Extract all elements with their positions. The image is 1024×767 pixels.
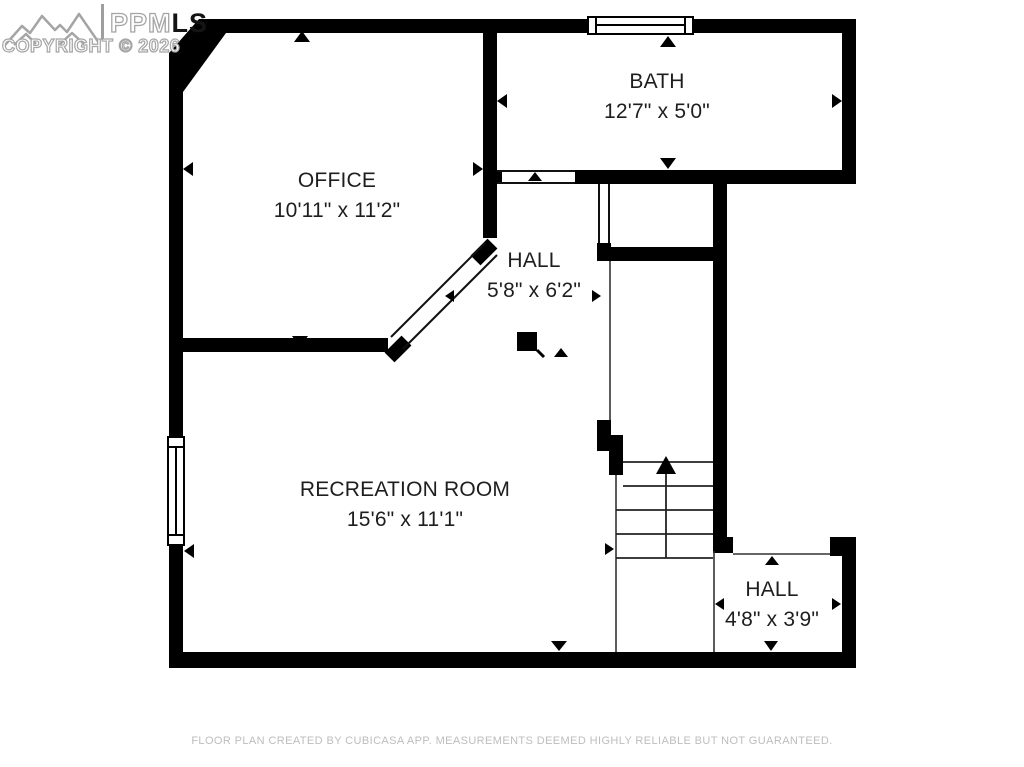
arrow-hall-lower-up-icon (765, 556, 779, 565)
room-dims: 5'8" x 6'2" (434, 276, 634, 306)
room-label-hall-lower: HALL 4'8" x 3'9" (697, 575, 847, 635)
post-tick (537, 350, 544, 357)
watermark: PPMLS COPYRIGHT © 2026 (0, 0, 260, 70)
arrow-bath-left-icon (497, 94, 507, 108)
arrow-hall-post-icon (554, 348, 568, 357)
arrow-bath-down-icon (660, 158, 676, 169)
watermark-brand-outline: PPM (110, 8, 172, 38)
room-dims: 10'11" x 11'2" (187, 196, 487, 226)
wall-bottom (169, 652, 856, 668)
room-name: RECREATION ROOM (255, 475, 555, 505)
post-column (517, 332, 544, 357)
wall-hall-lower-corner-block (830, 537, 856, 556)
room-name: HALL (434, 246, 634, 276)
room-name: BATH (507, 67, 807, 97)
room-label-bath: BATH 12'7" x 5'0" (507, 67, 807, 127)
watermark-divider (101, 4, 104, 40)
arrow-rec-right-icon (605, 543, 614, 555)
wall-bath-right (842, 19, 856, 184)
wall-left-upper (169, 92, 183, 437)
arrow-hall-lower-down-icon (764, 641, 778, 651)
wall-stair-foot-block (713, 537, 733, 553)
room-name: HALL (697, 575, 847, 605)
arrow-hall-up-icon (528, 172, 542, 181)
room-label-office: OFFICE 10'11" x 11'2" (187, 166, 487, 226)
room-dims: 15'6" x 11'1" (255, 505, 555, 535)
room-dims: 12'7" x 5'0" (507, 97, 807, 127)
arrow-rec-down-icon (551, 641, 567, 651)
watermark-copyright: COPYRIGHT © 2026 (2, 36, 180, 57)
watermark-brand-solid: LS (172, 8, 209, 38)
wall-top-left (226, 19, 588, 33)
arrow-bath-up-icon (660, 36, 676, 47)
floorplan-canvas: OFFICE 10'11" x 11'2" BATH 12'7" x 5'0" … (0, 0, 1024, 767)
wall-office-bottom (183, 338, 388, 352)
wall-top-right (693, 19, 856, 33)
room-label-recreation: RECREATION ROOM 15'6" x 11'1" (255, 475, 555, 535)
post-square (517, 332, 537, 351)
wall-stair-block-a (597, 420, 611, 451)
footer-disclaimer: FLOOR PLAN CREATED BY CUBICASA APP. MEAS… (0, 735, 1024, 747)
arrow-bath-right-icon (832, 94, 842, 108)
arrow-rec-left-icon (184, 544, 194, 558)
stairs-up-arrow-icon (656, 456, 676, 474)
stairs (616, 462, 713, 558)
room-name: OFFICE (187, 166, 487, 196)
room-dims: 4'8" x 3'9" (697, 605, 847, 635)
wall-stair-right (713, 170, 727, 551)
room-label-hall: HALL 5'8" x 6'2" (434, 246, 634, 306)
wall-stair-block-b (609, 435, 623, 475)
watermark-brand: PPMLS (110, 8, 208, 39)
wall-office-bottom-diagonal-cap (385, 336, 412, 363)
wall-left-lower (169, 545, 183, 668)
